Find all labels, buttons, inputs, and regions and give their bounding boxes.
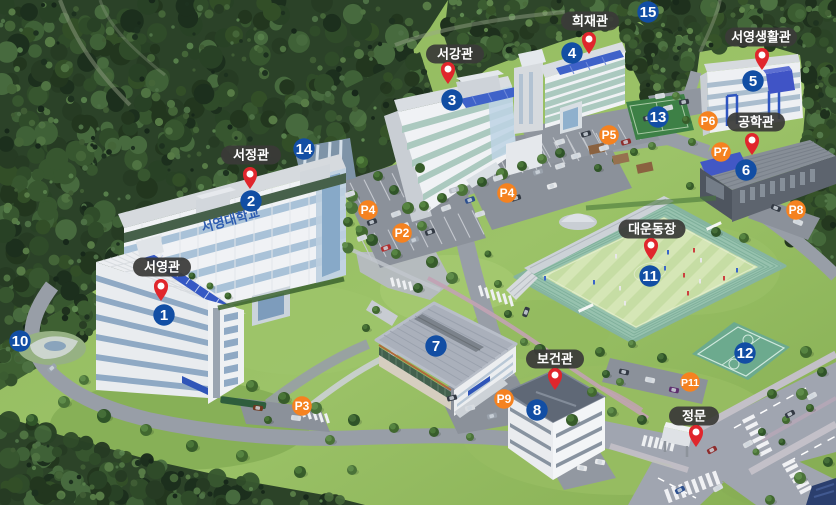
svg-text:14: 14 xyxy=(296,141,313,158)
svg-text:11: 11 xyxy=(642,268,658,285)
svg-text:P3: P3 xyxy=(295,399,310,413)
svg-text:15: 15 xyxy=(640,4,657,21)
svg-text:4: 4 xyxy=(568,45,577,62)
svg-text:3: 3 xyxy=(448,92,456,109)
svg-text:서영생활관: 서영생활관 xyxy=(731,30,791,45)
svg-text:공학관: 공학관 xyxy=(738,115,774,130)
svg-text:5: 5 xyxy=(749,73,757,90)
svg-text:P5: P5 xyxy=(602,128,617,142)
svg-text:정문: 정문 xyxy=(682,409,706,424)
svg-text:8: 8 xyxy=(533,402,541,419)
svg-text:서영관: 서영관 xyxy=(144,260,180,275)
svg-text:P4: P4 xyxy=(361,203,376,217)
svg-text:희재관: 희재관 xyxy=(572,14,608,29)
svg-text:P6: P6 xyxy=(701,114,716,128)
svg-text:P11: P11 xyxy=(681,377,699,389)
svg-text:1: 1 xyxy=(160,307,168,324)
svg-text:P4: P4 xyxy=(500,186,515,200)
svg-text:10: 10 xyxy=(12,333,29,350)
svg-text:7: 7 xyxy=(432,338,440,355)
svg-text:P2: P2 xyxy=(395,226,410,240)
svg-text:P7: P7 xyxy=(714,145,729,159)
svg-text:6: 6 xyxy=(742,162,750,179)
svg-text:2: 2 xyxy=(247,193,255,210)
svg-text:서강관: 서강관 xyxy=(437,47,473,62)
svg-text:P8: P8 xyxy=(789,203,804,217)
svg-text:서정관: 서정관 xyxy=(233,148,269,163)
svg-text:12: 12 xyxy=(737,345,754,362)
svg-text:P9: P9 xyxy=(497,392,512,406)
svg-text:13: 13 xyxy=(650,109,667,126)
svg-text:대운동장: 대운동장 xyxy=(628,222,676,237)
svg-text:보건관: 보건관 xyxy=(537,352,573,367)
